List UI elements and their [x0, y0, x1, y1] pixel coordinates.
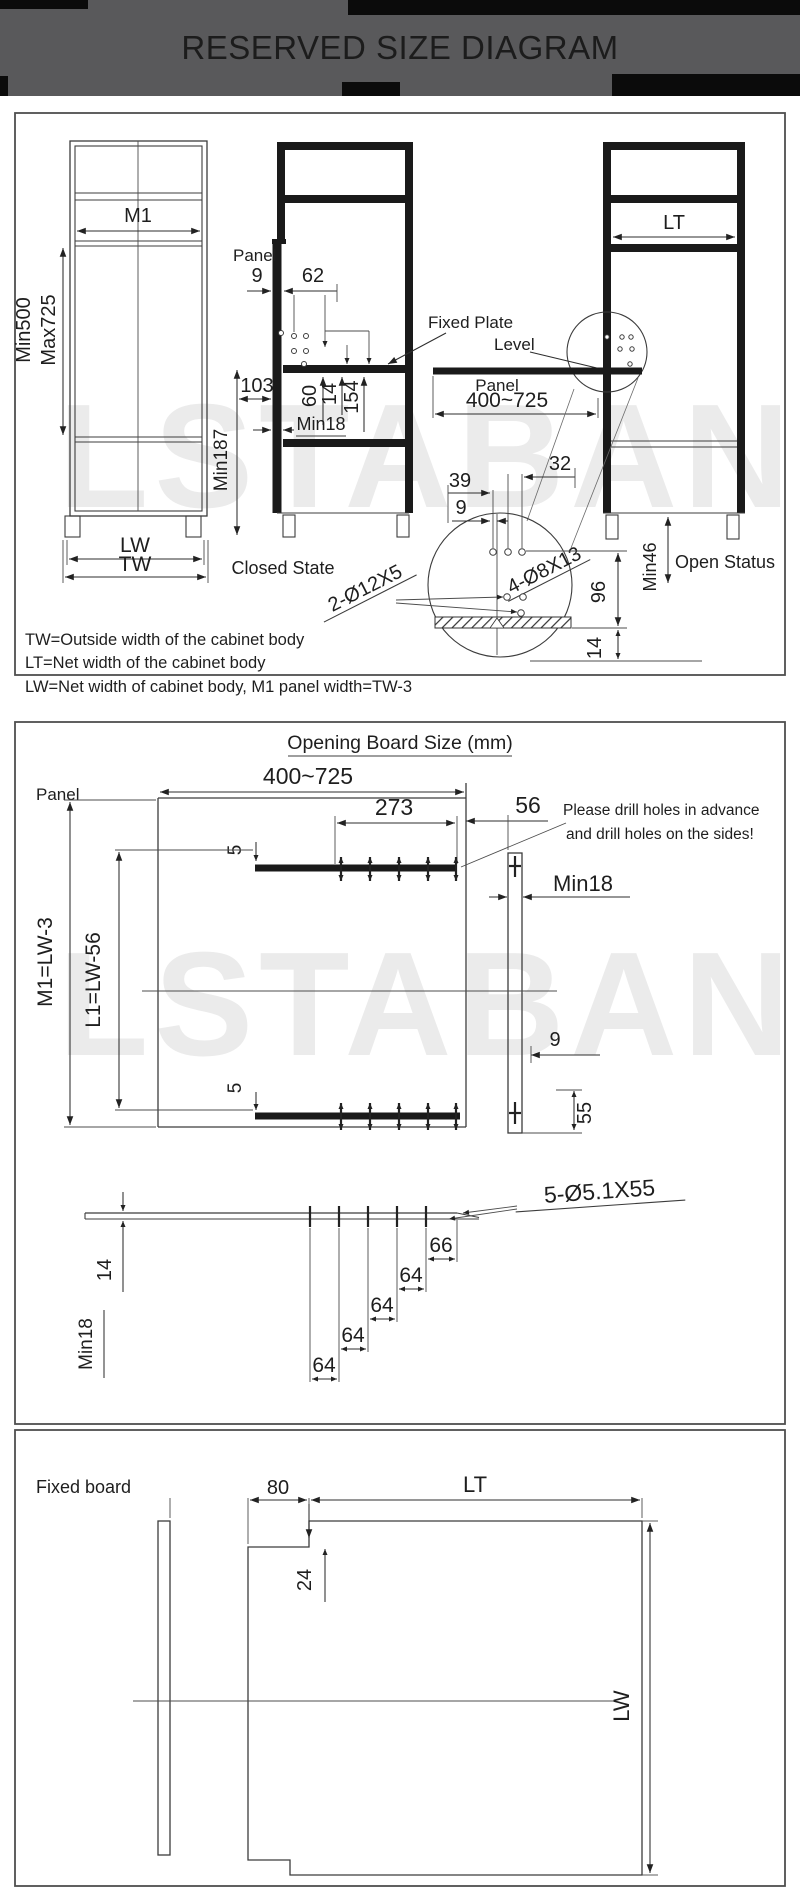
dim-tw: TW	[119, 553, 152, 576]
closed-state-cabinet: M1 Min500 Max725 LW TW Min187	[13, 141, 237, 583]
dim-154: 154	[341, 380, 363, 413]
note-line-1: Please drill holes in advance	[563, 802, 759, 819]
dim-m1: M1	[124, 205, 152, 227]
closed-section-cabinet: Panel 9 62 Fixed Plate 103 60	[231, 142, 513, 578]
section1-footnotes: TW=Outside width of the cabinet body LT=…	[25, 631, 412, 696]
dim-64c: 64	[341, 1324, 365, 1347]
dim-min18-profile: Min18	[76, 1318, 97, 1370]
dim-lt: LT	[663, 212, 685, 234]
dim-range-2: 400~725	[263, 763, 353, 789]
dim-96: 96	[588, 581, 610, 603]
open-status-cabinet: LT Level Panel 400~725 Min46 Open Sta	[433, 142, 775, 592]
dim-273: 273	[375, 794, 413, 820]
dim-56: 56	[515, 792, 541, 818]
page-header: RESERVED SIZE DIAGRAM	[0, 0, 800, 96]
dim-lt-3: LT	[463, 1472, 487, 1497]
section2-title: Opening Board Size (mm)	[287, 732, 512, 754]
dim-max725: Max725	[38, 294, 60, 365]
dim-min187: Min187	[211, 429, 232, 491]
dim-103: 103	[240, 375, 273, 397]
closed-state-label: Closed State	[231, 558, 334, 578]
dim-39: 39	[449, 470, 471, 492]
dim-64d: 64	[312, 1354, 336, 1377]
footnote-lw: LW=Net width of cabinet body, M1 panel w…	[25, 678, 412, 696]
dim-14-profile: 14	[94, 1259, 116, 1281]
board-edge-profile-view: 5-Ø5.1X55 66 64 64 64 64 14 Min18	[76, 1172, 685, 1382]
dim-66: 66	[429, 1234, 452, 1257]
level-label: Level	[494, 335, 535, 354]
dim-lw-3: LW	[609, 1690, 634, 1722]
dim-80: 80	[267, 1477, 289, 1499]
panel-label-2: Panel	[36, 785, 79, 804]
dim-24: 24	[294, 1569, 316, 1591]
panel-label: Panel	[233, 246, 276, 265]
page-title: RESERVED SIZE DIAGRAM	[0, 0, 800, 96]
footnote-tw: TW=Outside width of the cabinet body	[25, 631, 305, 649]
dim-64a: 64	[399, 1264, 423, 1287]
reserved-size-diagram-page: LSTABAN LSTABAN RESERVED SIZE DIAGRAM	[0, 0, 800, 1900]
diagram-canvas: M1 Min500 Max725 LW TW Min187	[0, 0, 800, 1900]
fixed-plate-label: Fixed Plate	[428, 313, 513, 332]
dim-9-side: 9	[549, 1029, 560, 1051]
opening-board-panel-view: Panel 400~725 273 56 Please drill holes …	[34, 763, 759, 1133]
open-status-label: Open Status	[675, 552, 775, 572]
section3-frame: Fixed board	[15, 1430, 785, 1886]
fixed-board-view: 80 LT 24 LW	[133, 1472, 658, 1875]
dim-14: 14	[319, 383, 341, 405]
dim-5-bottom: 5	[225, 1083, 246, 1094]
dim-32: 32	[549, 453, 571, 475]
dim-min46: Min46	[640, 542, 660, 591]
footnote-lt: LT=Net width of the cabinet body	[25, 654, 266, 672]
note-line-2: and drill holes on the sides!	[566, 826, 754, 843]
dim-55: 55	[574, 1102, 596, 1124]
dim-14b: 14	[584, 637, 606, 659]
dim-min500: Min500	[13, 297, 35, 363]
section3-title: Fixed board	[36, 1477, 131, 1497]
dim-min18: Min18	[296, 414, 345, 434]
dim-64b: 64	[370, 1294, 394, 1317]
panel-range: 400~725	[466, 389, 548, 412]
dim-min18-side: Min18	[553, 871, 613, 896]
dim-62: 62	[302, 265, 324, 287]
holes-12x5-label: 2-Ø12X5	[325, 561, 406, 617]
dim-60: 60	[299, 385, 321, 407]
dim-m1-eq: M1=LW-3	[34, 917, 57, 1007]
dim-9: 9	[251, 265, 262, 287]
dim-l1-eq: L1=LW-56	[82, 932, 105, 1028]
dim-9b: 9	[455, 497, 466, 519]
